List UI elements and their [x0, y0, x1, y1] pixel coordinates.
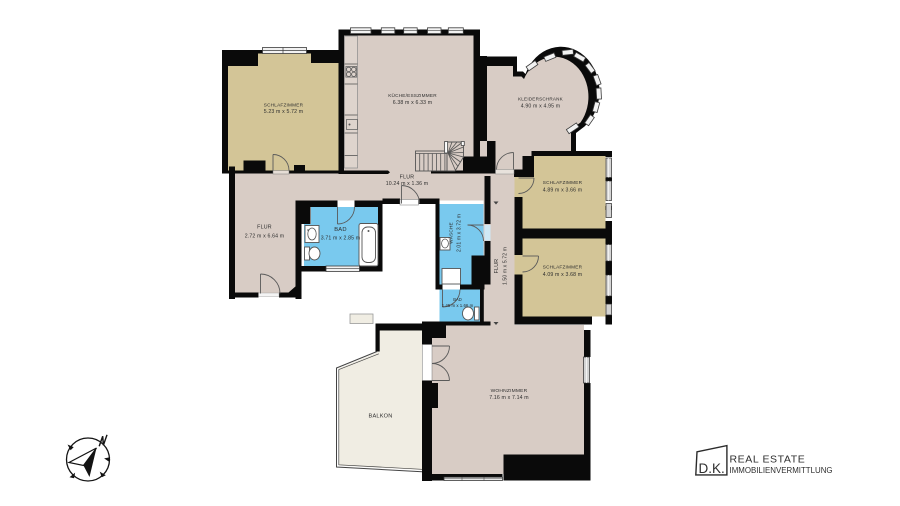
svg-text:10.24 m x 1.36 m: 10.24 m x 1.36 m	[386, 181, 428, 187]
svg-text:2.72 m x 6.64 m: 2.72 m x 6.64 m	[245, 233, 284, 239]
svg-text:1.50 m x 5.72 m: 1.50 m x 5.72 m	[503, 247, 509, 285]
svg-text:WÄSCHE: WÄSCHE	[448, 222, 454, 244]
svg-text:IMMOBILIENVERMITTLUNG: IMMOBILIENVERMITTLUNG	[730, 466, 833, 475]
svg-text:REAL ESTATE: REAL ESTATE	[730, 454, 806, 466]
svg-text:SCHLAFZIMMER: SCHLAFZIMMER	[543, 180, 583, 185]
svg-text:4.90 m x 4.95 m: 4.90 m x 4.95 m	[521, 104, 560, 110]
svg-text:KÜCHE/ESSZIMMER: KÜCHE/ESSZIMMER	[388, 92, 437, 98]
svg-text:FLUR: FLUR	[257, 225, 272, 231]
svg-text:BAD: BAD	[453, 297, 462, 302]
svg-text:6.38 m x 6.33 m: 6.38 m x 6.33 m	[393, 100, 432, 106]
svg-text:2.01 m x 3.72 m: 2.01 m x 3.72 m	[457, 214, 463, 252]
svg-text:1.45 m x 1.66 m: 1.45 m x 1.66 m	[442, 303, 474, 308]
svg-text:WOHNZIMMER: WOHNZIMMER	[491, 388, 528, 394]
svg-text:BAD: BAD	[334, 227, 347, 233]
svg-text:D.K.: D.K.	[699, 461, 725, 476]
svg-text:SCHLAFZIMMER: SCHLAFZIMMER	[264, 103, 304, 108]
svg-text:KLEIDERSCHRANK: KLEIDERSCHRANK	[518, 97, 564, 102]
svg-text:7.16 m x 7.14 m: 7.16 m x 7.14 m	[489, 395, 528, 401]
svg-text:FLUR: FLUR	[400, 174, 415, 180]
svg-text:4.89 m x 3.66 m: 4.89 m x 3.66 m	[543, 188, 582, 194]
svg-text:3.71 m x 2.85 m: 3.71 m x 2.85 m	[321, 235, 360, 241]
svg-text:FLUR: FLUR	[494, 259, 500, 274]
svg-text:BALKON: BALKON	[369, 414, 393, 420]
svg-text:SCHLAFZIMMER: SCHLAFZIMMER	[543, 264, 583, 269]
svg-text:5.23 m x 5.72 m: 5.23 m x 5.72 m	[264, 109, 303, 115]
svg-text:4.09 m x 3.68 m: 4.09 m x 3.68 m	[543, 272, 582, 278]
